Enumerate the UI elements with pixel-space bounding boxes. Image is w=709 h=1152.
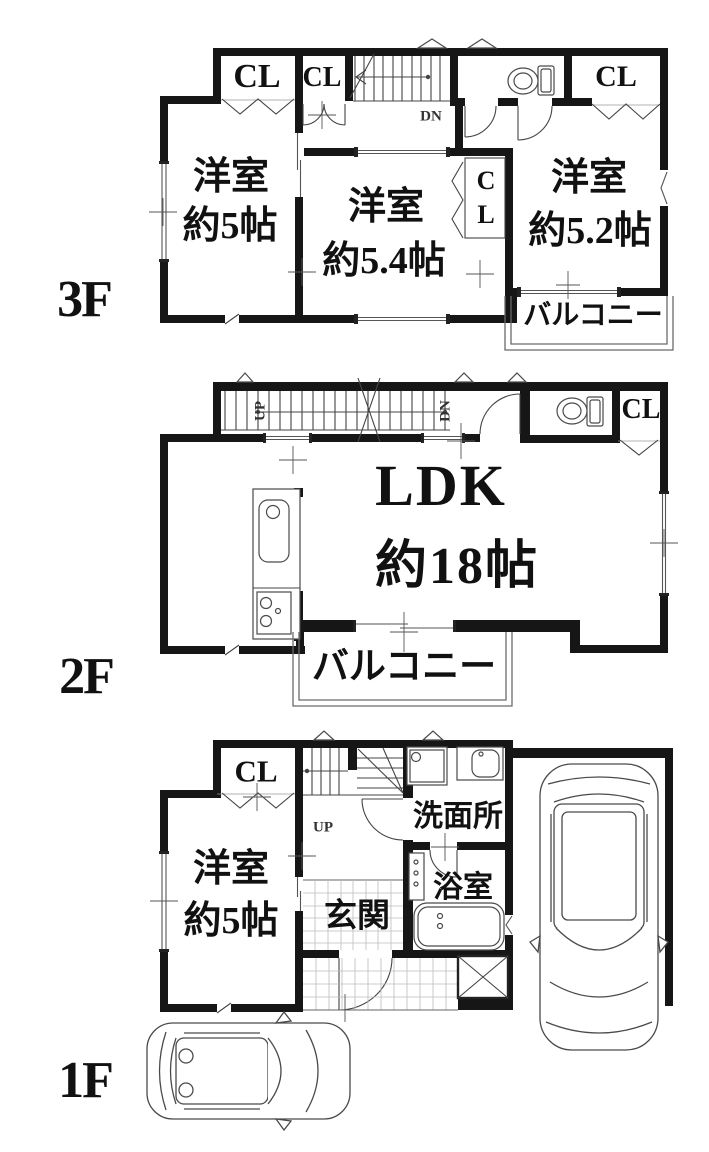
stairs-3f: [350, 54, 450, 101]
floor2-ldk-name: LDK: [375, 457, 507, 515]
shower-panel-icon: [409, 853, 424, 900]
floor1-room-name: 洋室: [193, 850, 269, 888]
window-bath-1f: [504, 915, 514, 935]
toilet-icon-2f: [557, 397, 603, 426]
floor-plan-canvas: 3F 2F 1F CL CL CL C L DN 洋室 約5帖 洋室 約5.4帖…: [0, 0, 709, 1152]
vent-icon: [468, 39, 496, 48]
floor3-room-right-name: 洋室: [551, 159, 627, 197]
faucet-icon: [267, 506, 280, 519]
floor3-closet-mid-label: CL: [303, 64, 342, 92]
stove-icon: [257, 592, 291, 634]
door-wc-3f: [465, 106, 496, 137]
floor3-room-left-name: 洋室: [193, 158, 269, 196]
floor3-room-right-size: 約5.2帖: [528, 212, 652, 250]
window-room2-bottom-3f: [354, 314, 450, 324]
wall-tick-2f: [225, 645, 239, 655]
wall-tick-3f: [225, 314, 239, 324]
kitchen-counter-icon: [253, 489, 300, 639]
floor3-room-center-size: 約5.4帖: [322, 242, 446, 280]
floor1-entrance-label: 玄関: [324, 901, 390, 934]
door-washroom-1f: [362, 799, 403, 840]
floor3-balcony-label: バルコニー: [523, 302, 662, 330]
vent-icon: [314, 731, 334, 740]
vent-icon: [455, 373, 473, 382]
door-hall-2f: [480, 394, 520, 434]
floor3-closet-right-label: CL: [595, 62, 637, 92]
vent-icon: [418, 39, 446, 48]
window-left-3f: [159, 161, 169, 262]
floor3-room-left-size: 約5帖: [182, 207, 277, 245]
balcony-slider-2f: [353, 620, 456, 632]
floor1-closet-label: CL: [234, 756, 277, 787]
bathtub-icon: [414, 903, 504, 950]
vanity-icon: [457, 747, 503, 780]
sliding-door-room1-3f: [294, 133, 304, 197]
crossed-box-icon: [458, 956, 508, 998]
porch-tile-grid: [303, 958, 458, 1010]
floor2-closet-label: CL: [622, 396, 661, 424]
door-bath-gap-1f: [430, 842, 457, 850]
window-stairs-left-2f: [263, 433, 312, 443]
floor1-stairs-up-label: UP: [313, 821, 333, 836]
washer-pan-icon: [407, 747, 447, 785]
floor2-stairs-dn-label: DN: [439, 400, 454, 422]
floor1-bathroom-label: 浴室: [433, 873, 493, 903]
floor1-tag: 1F: [58, 1055, 112, 1107]
floor3-closet-small-c: C: [477, 168, 496, 194]
vent-icon: [237, 373, 253, 382]
window-left-1f: [159, 851, 169, 952]
vent-icon: [508, 373, 526, 382]
floor3-stairs-dn-label: DN: [420, 110, 442, 125]
window-room3-bottom-3f: [517, 287, 621, 297]
floor2-tag: 2F: [59, 651, 113, 703]
car-parking-bottom-icon: [147, 1012, 350, 1130]
floor2-ldk-size: 約18帖: [375, 541, 539, 593]
door-room3-3f: [518, 106, 552, 140]
window-room2-top-3f: [354, 147, 450, 157]
wall-tick-1f: [217, 1003, 231, 1013]
floor3-closet-small-l: L: [477, 202, 494, 228]
floor1-room-size: 約5帖: [183, 902, 278, 940]
floor2-balcony-label: バルコニー: [312, 649, 496, 686]
window-right-3f: [659, 170, 669, 206]
toilet-icon-3f: [508, 66, 554, 95]
vent-icon: [423, 731, 443, 740]
closet-doors-2f: [618, 440, 660, 455]
floor3-tag: 3F: [57, 274, 111, 326]
sliding-door-room-1f: [294, 877, 304, 911]
car-parking-right-icon: [530, 764, 668, 1050]
floor1-washroom-label: 洗面所: [413, 802, 503, 832]
window-stairs-right-2f: [421, 433, 465, 443]
floor3-room-center-name: 洋室: [348, 188, 424, 226]
floor2-stairs-up-label: UP: [254, 401, 269, 421]
floor3-closet-left-label: CL: [233, 60, 280, 94]
closet-doors-1f: [217, 793, 295, 808]
